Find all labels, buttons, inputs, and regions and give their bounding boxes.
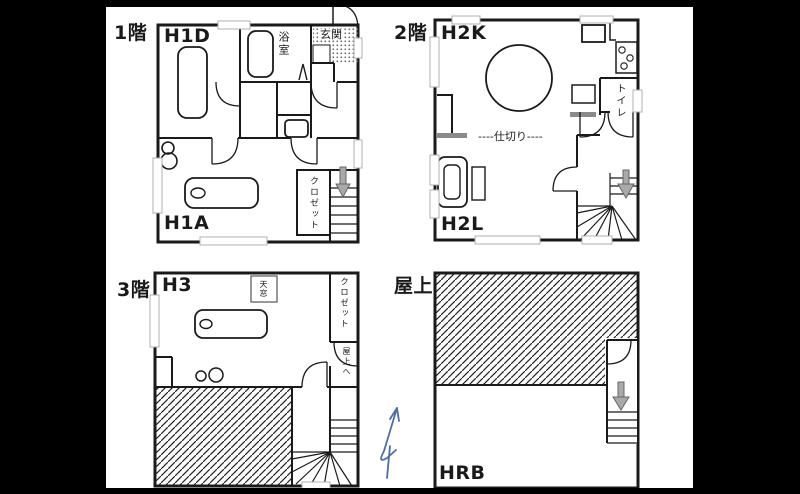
- hatched-area-3f: [155, 388, 292, 485]
- room-label-toilet: トイレ: [614, 83, 624, 119]
- unit-label-h1d: H1D: [164, 27, 210, 46]
- north-arrow: [381, 408, 399, 478]
- floor-label-1f: 1階: [114, 24, 147, 43]
- unit-label-h2k: H2K: [441, 24, 486, 43]
- letterbox-right: [693, 0, 800, 494]
- unit-label-h2l: H2L: [441, 215, 484, 234]
- room-label-closet-1f: クロゼット: [308, 176, 317, 231]
- letterbox-left: [0, 0, 106, 494]
- floorplan-sheet: 1階 H1D 浴室 玄関 クロゼット H1A 2階 H2K トイレ ----仕切…: [0, 0, 800, 494]
- floorplan-drawing: [0, 0, 800, 494]
- shoe-cabinet: [313, 45, 330, 63]
- plan-3f: [150, 273, 358, 490]
- floor-label-3f: 3階: [117, 281, 150, 300]
- letterbox-bottom: [0, 488, 800, 494]
- letterbox-top: [0, 0, 800, 7]
- floor-label-2f: 2階: [394, 24, 427, 43]
- room-label-closet-3f: クロゼット: [339, 277, 348, 330]
- room-label-to-roof: 屋上へ: [342, 347, 350, 377]
- room-label-bathroom: 浴室: [278, 31, 289, 57]
- unit-label-h1a: H1A: [164, 214, 209, 233]
- room-label-skylight: 天窓: [259, 280, 267, 298]
- plan-roof: [435, 273, 638, 488]
- unit-label-hrb: HRB: [439, 464, 486, 483]
- partition-label: ----仕切り----: [478, 131, 543, 142]
- room-label-entrance: 玄関: [319, 29, 343, 40]
- unit-label-h3: H3: [162, 276, 192, 295]
- counter-bar: [570, 112, 596, 117]
- floor-label-roof: 屋上: [394, 277, 433, 296]
